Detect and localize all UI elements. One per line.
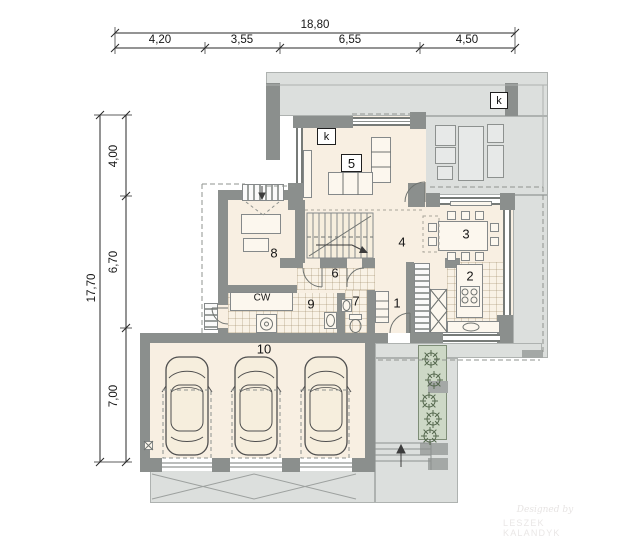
planter-step-3: [428, 458, 448, 470]
garage-door-3: [300, 459, 352, 471]
dim-left-total: 17,70: [86, 274, 98, 303]
terrace-chair: [487, 124, 504, 143]
watermark-author: LESZEK KALANDYK: [503, 518, 593, 538]
dim-top-seg-2: 3,55: [231, 34, 253, 46]
wall-garage-s3: [282, 458, 300, 472]
room-number-10: 10: [257, 342, 271, 357]
dining-chair: [475, 211, 484, 220]
office-cabinet: [243, 238, 269, 252]
dining-chair: [490, 237, 499, 246]
office-desk: [241, 214, 281, 234]
wall-post-ne: [410, 112, 426, 129]
sofa-horizontal: [328, 172, 373, 195]
terrace-lounger: [487, 145, 504, 178]
room-number-3: 3: [462, 227, 469, 242]
dining-chair: [490, 223, 499, 232]
wc-basin: [341, 299, 352, 312]
room-number-6: 6: [331, 266, 338, 281]
window-east: [503, 210, 511, 315]
floor-garage: [150, 343, 365, 458]
washing-machine: [256, 314, 277, 333]
wall-entry-east: [406, 262, 414, 333]
room-number-4: 4: [398, 235, 405, 250]
terrace-chair: [435, 147, 456, 164]
dining-chair: [428, 237, 437, 246]
wall-west-a: [218, 200, 228, 305]
chimney-marker-label: k: [496, 95, 502, 107]
wall-corridor-c: [362, 258, 375, 268]
pantry-shelves: [414, 263, 430, 333]
room-number-9: 9: [307, 297, 314, 312]
dining-chair: [461, 211, 470, 220]
room8-step-element: [242, 184, 284, 201]
wall-garage-west: [140, 333, 150, 472]
room-number-2: 2: [466, 269, 473, 284]
planter-step-2: [420, 443, 448, 455]
wall-post-dining-ne: [500, 193, 515, 210]
paving-block-east: [522, 350, 543, 358]
driveway: [150, 470, 375, 503]
wall-garage-s4: [352, 458, 375, 472]
tall-cabinets: [430, 289, 447, 333]
wall-post-dining-nw: [426, 193, 440, 207]
kitchen-sink-counter: [447, 321, 500, 333]
planter-step-1: [428, 381, 448, 393]
chimney-marker-terrace: k: [490, 92, 508, 109]
wall-south-b: [410, 333, 443, 343]
room-number-7: 7: [352, 294, 359, 309]
terrace-chair: [435, 125, 456, 146]
cooktop: [460, 286, 480, 307]
dining-sideboard: [450, 201, 492, 206]
hot-water-label: CW: [254, 293, 271, 304]
terrace-table: [458, 126, 484, 181]
room-number-8: 8: [270, 246, 277, 261]
wall-wc-entry: [367, 290, 375, 333]
chimney-marker-label: k: [324, 131, 330, 143]
wall-corridor-a: [280, 258, 303, 268]
paving-east: [513, 195, 548, 358]
paving-south-strip: [375, 343, 542, 358]
tv-board: [303, 150, 312, 198]
dim-top-total: 18,80: [301, 19, 330, 31]
wall-garage-s2: [212, 458, 230, 472]
dining-chair: [447, 211, 456, 220]
dining-chair: [447, 252, 456, 261]
terrace-side-table: [437, 166, 453, 180]
garage-fixture: [144, 441, 153, 450]
sofa-vertical: [371, 137, 391, 183]
wall-garage-s1: [140, 458, 162, 472]
wall-terrace-west: [266, 83, 280, 160]
room-number-1: 1: [393, 296, 400, 311]
front-door-opening: [388, 333, 410, 343]
wall-stairs-west: [295, 200, 305, 263]
window-living-north: [353, 117, 410, 126]
window-living-west: [296, 128, 303, 183]
chimney-marker-living: k: [317, 128, 336, 145]
side-entry-steps: [204, 303, 218, 330]
dim-left-seg-2: 6,70: [108, 251, 120, 273]
utility-sink: [324, 312, 337, 329]
room-5-number-box: 5: [341, 154, 362, 172]
dim-top-seg-1: 4,20: [149, 34, 171, 46]
floor-plan: k k 5 1 2 3 4 6 7 8 9 10 CW 18,80 4,20 3…: [0, 0, 638, 556]
room-number: 5: [348, 156, 355, 171]
dining-chair: [428, 223, 437, 232]
garage-door-2: [230, 459, 282, 471]
dim-left-seg-3: 7,00: [108, 385, 120, 407]
dim-top-seg-4: 4,50: [456, 34, 478, 46]
side-door-opening: [218, 305, 228, 328]
dim-top-seg-3: 6,55: [339, 34, 361, 46]
garage-door-1: [162, 459, 212, 471]
entry-bench: [375, 291, 389, 323]
watermark-designed-by: Designed by: [517, 505, 573, 515]
wall-living-north: [293, 116, 353, 128]
dining-chair: [461, 252, 470, 261]
window-kitchen-south: [443, 334, 500, 342]
dim-left-seg-1: 4,00: [108, 145, 120, 167]
dining-chair: [475, 252, 484, 261]
wc-toilet-tank: [349, 314, 362, 320]
terrace-door-post: [408, 183, 425, 207]
wall-garage-east: [365, 343, 375, 470]
